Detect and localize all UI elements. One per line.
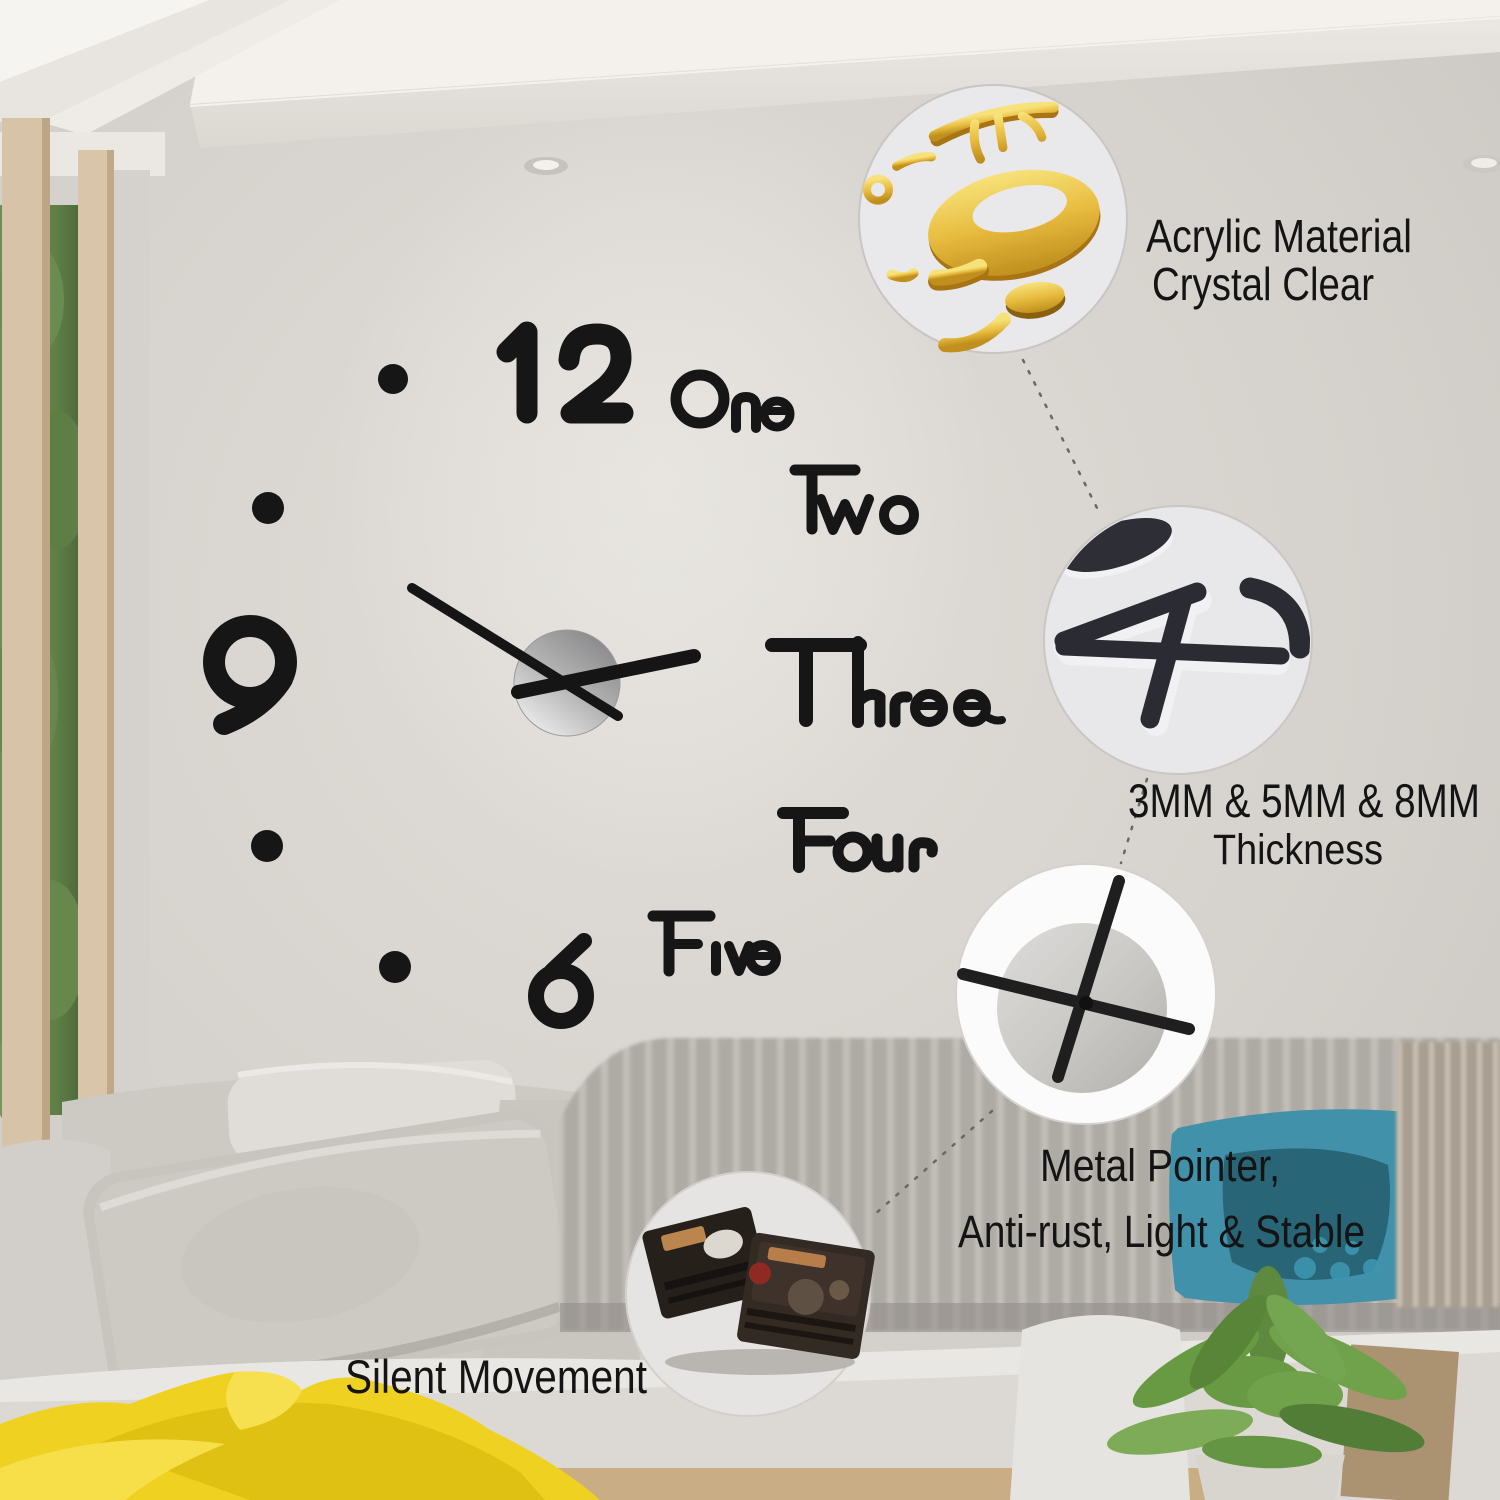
svg-text:Thickness: Thickness — [1213, 826, 1383, 874]
svg-text:Metal Pointer,: Metal Pointer, — [1040, 1140, 1280, 1191]
svg-text:Silent Movement: Silent Movement — [345, 1350, 647, 1403]
svg-text:Crystal Clear: Crystal Clear — [1152, 258, 1374, 310]
svg-text:Acrylic Material: Acrylic Material — [1146, 210, 1412, 262]
svg-text:Anti-rust, Light & Stable: Anti-rust, Light & Stable — [958, 1206, 1365, 1257]
svg-text:3MM & 5MM & 8MM: 3MM & 5MM & 8MM — [1128, 774, 1480, 827]
